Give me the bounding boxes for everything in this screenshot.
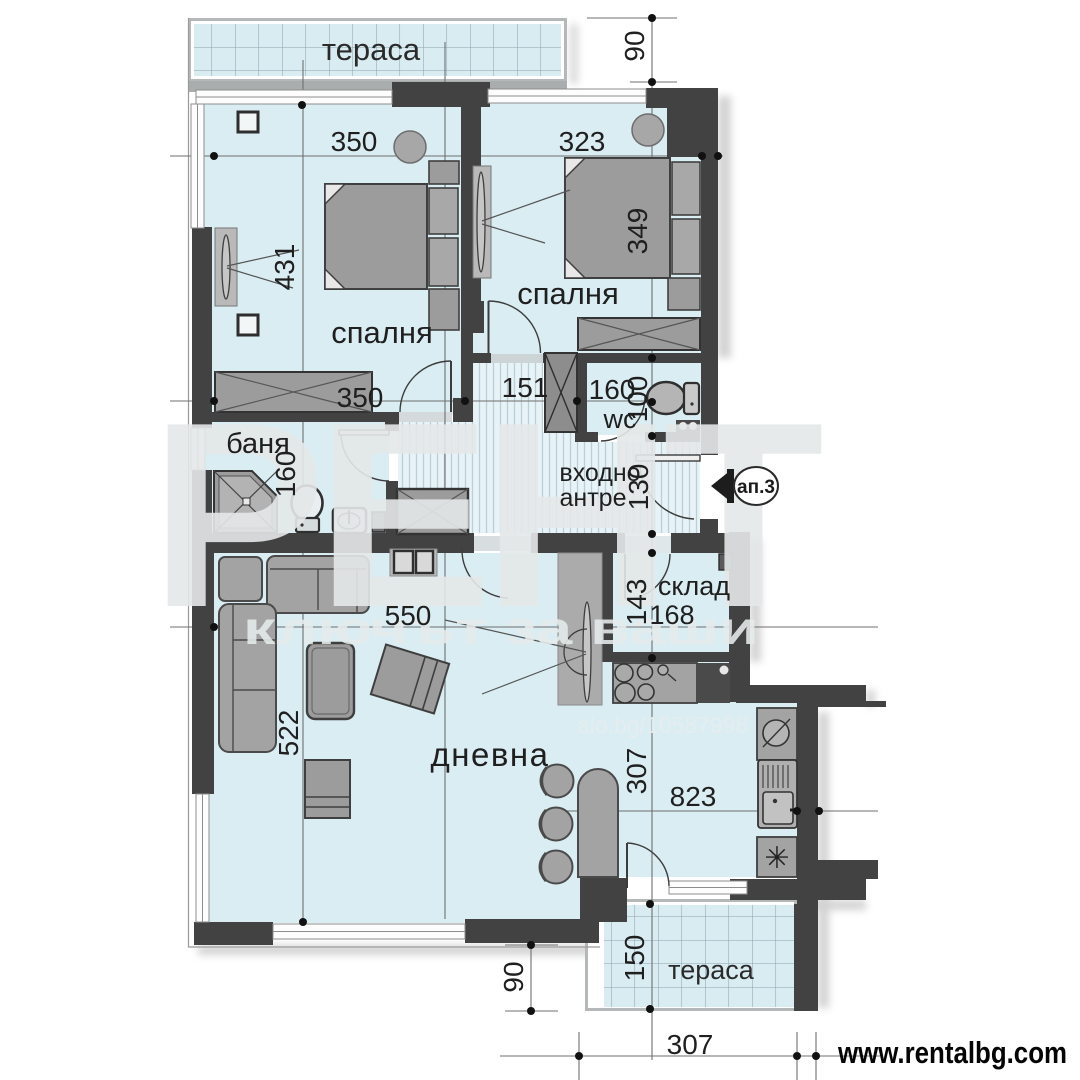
svg-text:323: 323 <box>559 126 606 157</box>
svg-text:спалня: спалня <box>331 315 433 350</box>
svg-text:alo.bg/10587998: alo.bg/10587998 <box>577 712 748 738</box>
svg-text:307: 307 <box>621 748 652 795</box>
svg-text:349: 349 <box>622 208 653 255</box>
svg-text:90: 90 <box>619 30 650 61</box>
svg-text:✳: ✳ <box>764 842 789 875</box>
svg-text:100: 100 <box>622 376 653 423</box>
svg-text:www.rentalbg.com: www.rentalbg.com <box>837 1035 1067 1070</box>
svg-text:550: 550 <box>385 600 432 631</box>
svg-text:спалня: спалня <box>517 276 619 311</box>
svg-text:тераса: тераса <box>322 32 421 67</box>
svg-text:90: 90 <box>498 961 529 992</box>
svg-text:350: 350 <box>331 126 378 157</box>
svg-text:130: 130 <box>623 464 654 511</box>
svg-text:дневна: дневна <box>431 736 550 773</box>
svg-text:160: 160 <box>270 451 301 498</box>
svg-text:ап.3: ап.3 <box>737 477 775 498</box>
svg-text:склад: склад <box>658 571 730 601</box>
svg-text:168: 168 <box>649 600 694 630</box>
svg-text:823: 823 <box>670 781 717 812</box>
svg-text:антре: антре <box>560 484 627 512</box>
svg-text:150: 150 <box>619 935 650 982</box>
svg-text:тераса: тераса <box>668 955 755 985</box>
svg-text:307: 307 <box>667 1029 714 1060</box>
svg-text:350: 350 <box>337 382 384 413</box>
svg-text:431: 431 <box>269 244 300 291</box>
svg-text:151: 151 <box>502 372 549 403</box>
svg-text:522: 522 <box>273 710 304 757</box>
svg-text:143: 143 <box>621 579 652 626</box>
